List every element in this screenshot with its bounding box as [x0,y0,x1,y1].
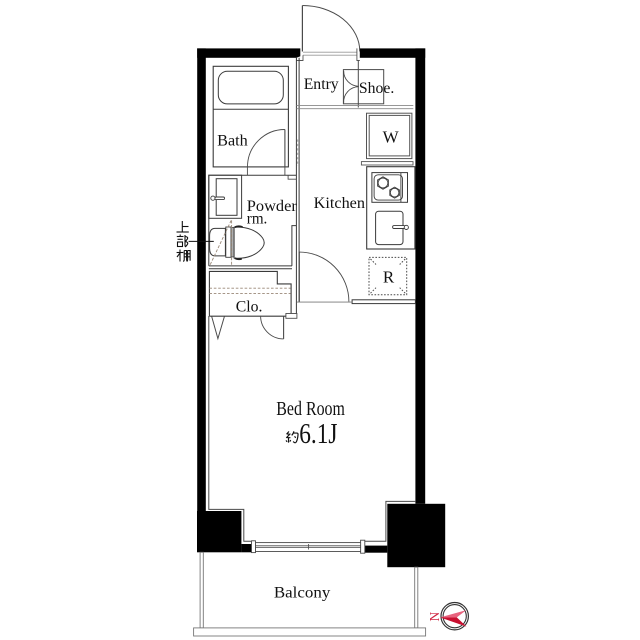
svg-text:N: N [427,612,442,622]
svg-text:Entry: Entry [304,76,339,93]
svg-text:rm.: rm. [247,210,267,227]
svg-text:Shoe.: Shoe. [359,80,394,97]
svg-text:6.1J: 6.1J [299,418,337,450]
svg-text:W: W [383,127,400,146]
svg-text:Balcony: Balcony [274,585,330,602]
svg-text:Kitchen: Kitchen [314,195,365,212]
svg-text:Bath: Bath [217,132,248,149]
svg-text:Bed Room: Bed Room [276,398,345,420]
svg-text:Clo.: Clo. [236,298,263,315]
svg-text:R: R [383,268,395,287]
